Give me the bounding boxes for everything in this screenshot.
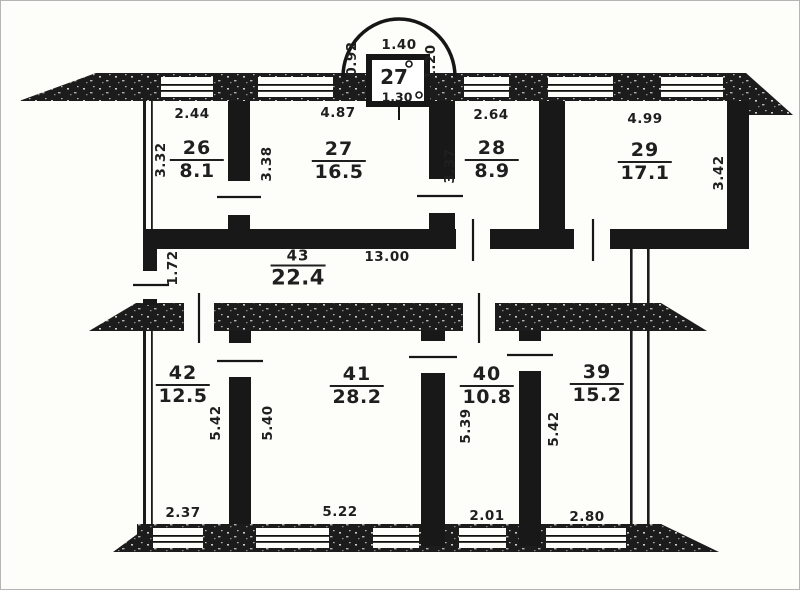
dim-room42-width: 2.37 xyxy=(165,505,200,521)
dim-room41-depth: 5.40 xyxy=(260,405,276,440)
window xyxy=(546,528,626,548)
room42-label: 42 12.5 xyxy=(156,363,210,407)
room39-number: 39 xyxy=(570,362,624,385)
dim-room27-depth: 3.38 xyxy=(259,146,275,181)
wall-28-29 xyxy=(539,101,565,241)
room42-number: 42 xyxy=(156,363,210,386)
room29-number: 29 xyxy=(618,140,672,163)
dim-room28-depth: 3.37 xyxy=(442,148,458,183)
window xyxy=(256,528,329,548)
balcony-room-number: 27 xyxy=(380,67,408,87)
room26-area: 8.1 xyxy=(170,161,224,182)
room41-label: 41 28.2 xyxy=(330,364,384,408)
dim-room39-depth: 5.42 xyxy=(546,411,562,446)
dim-room40-width: 2.01 xyxy=(469,508,504,524)
room28-number: 28 xyxy=(465,138,519,161)
dim-room26-depth: 3.32 xyxy=(153,142,169,177)
room28-area: 8.9 xyxy=(465,161,519,182)
balcony-dim-right: 1.20 xyxy=(423,44,439,79)
room40-number: 40 xyxy=(460,364,514,387)
wall-right-29 xyxy=(727,101,749,246)
exterior-wall-middle xyxy=(89,303,707,331)
dim-room29-width: 4.99 xyxy=(627,111,662,127)
dim-room28-width: 2.64 xyxy=(473,107,508,123)
room26-number: 26 xyxy=(170,138,224,161)
window xyxy=(661,77,723,97)
window xyxy=(161,77,213,97)
window xyxy=(459,528,506,548)
dim-room27-width: 4.87 xyxy=(320,105,355,121)
corridor43-number: 43 xyxy=(271,249,326,267)
room27-number: 27 xyxy=(312,139,366,162)
room27-label: 27 16.5 xyxy=(312,139,366,183)
room42-area: 12.5 xyxy=(156,386,210,407)
room39-area: 15.2 xyxy=(570,385,624,406)
door-openings xyxy=(133,179,610,377)
dim-corridor-width: 1.72 xyxy=(165,250,181,285)
window xyxy=(548,77,613,97)
room29-label: 29 17.1 xyxy=(618,140,672,184)
room27-area: 16.5 xyxy=(312,162,366,183)
floor-plan-page: 1.40 0.92 1.20 27 1.30 2.44 3.32 26 8.1 … xyxy=(0,0,800,590)
window xyxy=(373,528,419,548)
dim-room39-width: 2.80 xyxy=(569,509,604,525)
corridor43-area: 22.4 xyxy=(271,267,326,289)
room29-area: 17.1 xyxy=(618,163,672,184)
wall-corridor-top xyxy=(143,229,749,249)
dim-room42-depth: 5.42 xyxy=(208,405,224,440)
balcony-dim-left: 0.92 xyxy=(344,41,360,76)
room28-label: 28 8.9 xyxy=(465,138,519,182)
dim-room41-width: 5.22 xyxy=(322,504,357,520)
room41-area: 28.2 xyxy=(330,387,384,408)
dim-room26-width: 2.44 xyxy=(174,106,209,122)
window xyxy=(153,528,203,548)
dim-room29-depth: 3.42 xyxy=(711,155,727,190)
dim-room40-depth: 5.39 xyxy=(458,408,474,443)
balcony-dim-bottom: 1.30 xyxy=(382,90,413,105)
room41-number: 41 xyxy=(330,364,384,387)
room26-label: 26 8.1 xyxy=(170,138,224,182)
dim-corridor-length: 13.00 xyxy=(364,249,409,265)
corridor43-label: 43 22.4 xyxy=(271,246,326,289)
balcony-dim-top: 1.40 xyxy=(381,37,416,53)
window xyxy=(464,77,509,97)
window xyxy=(258,77,333,97)
room40-area: 10.8 xyxy=(460,387,514,408)
room39-label: 39 15.2 xyxy=(570,362,624,406)
room40-label: 40 10.8 xyxy=(460,364,514,408)
exterior-walls xyxy=(19,73,793,552)
